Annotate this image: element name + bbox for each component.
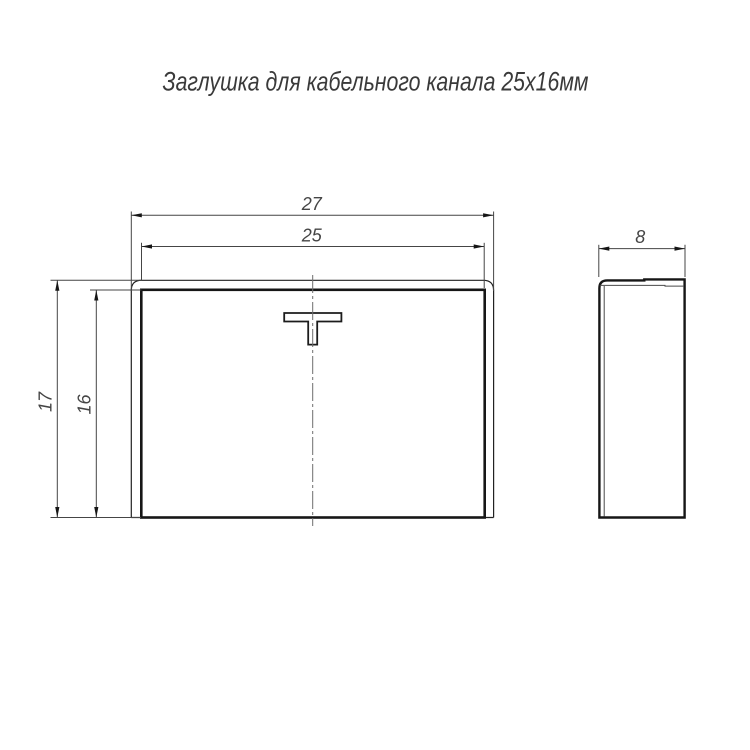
- svg-text:25: 25: [301, 225, 323, 245]
- svg-text:Заглушка для кабельного канала: Заглушка для кабельного канала 25х16мм: [163, 67, 589, 97]
- svg-text:8: 8: [635, 227, 645, 247]
- svg-text:16: 16: [75, 394, 95, 415]
- svg-text:27: 27: [301, 194, 323, 214]
- svg-text:17: 17: [36, 391, 56, 412]
